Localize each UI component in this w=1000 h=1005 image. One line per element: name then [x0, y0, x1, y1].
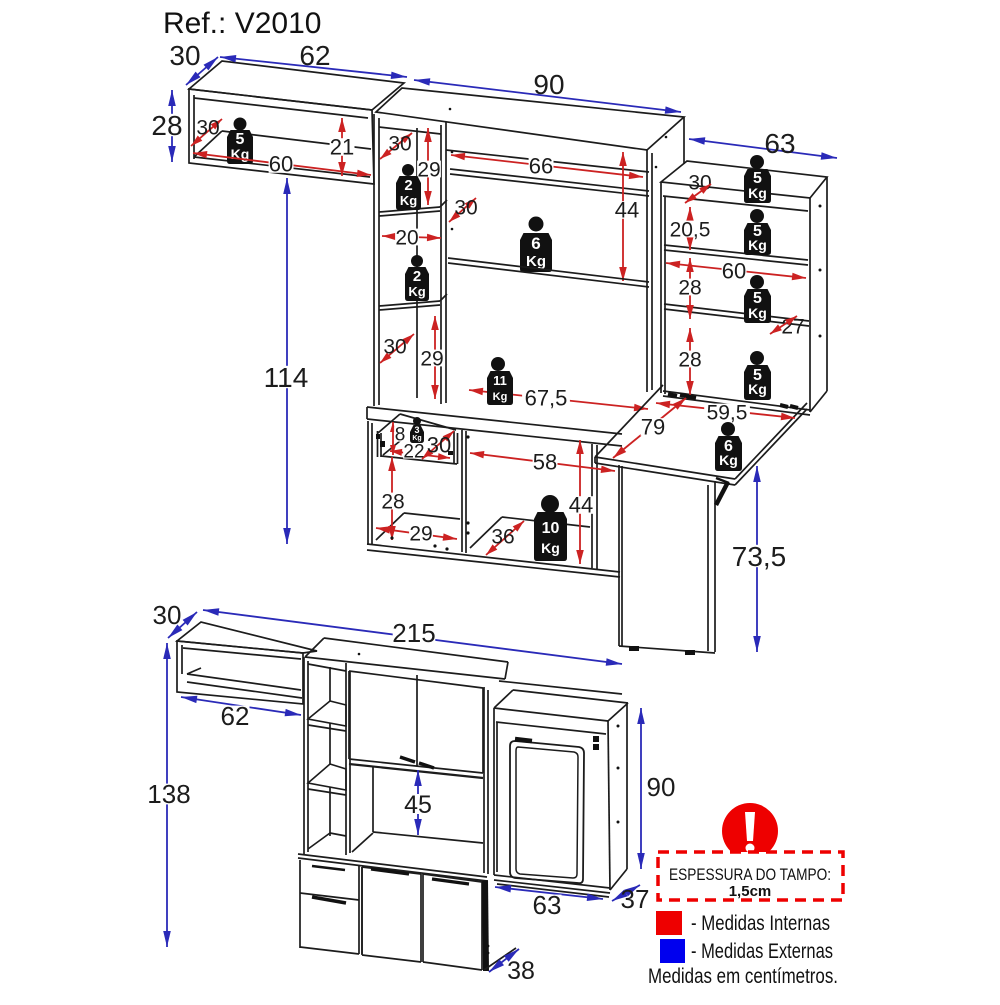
svg-text:30: 30: [688, 171, 711, 194]
svg-text:59,5: 59,5: [707, 401, 748, 424]
svg-text:11: 11: [493, 373, 507, 388]
svg-text:Ref.: V2010: Ref.: V2010: [163, 7, 321, 40]
svg-text:36: 36: [491, 525, 514, 548]
svg-text:3: 3: [414, 425, 419, 435]
svg-text:60: 60: [722, 259, 746, 284]
svg-text:60: 60: [269, 152, 293, 177]
svg-text:20: 20: [395, 226, 418, 249]
svg-text:63: 63: [533, 890, 562, 920]
svg-text:114: 114: [264, 362, 309, 393]
svg-text:63: 63: [764, 128, 795, 159]
svg-text:20,5: 20,5: [670, 218, 711, 241]
svg-text:Kg: Kg: [400, 193, 417, 208]
svg-text:58: 58: [533, 450, 557, 475]
svg-text:Kg: Kg: [748, 381, 767, 397]
svg-text:90: 90: [533, 69, 564, 100]
svg-text:10: 10: [542, 520, 560, 537]
svg-text:215: 215: [392, 618, 435, 648]
svg-text:29: 29: [409, 522, 432, 545]
svg-text:21: 21: [330, 135, 354, 160]
svg-text:28: 28: [151, 110, 182, 141]
svg-text:67,5: 67,5: [525, 386, 568, 411]
svg-text:30: 30: [153, 600, 182, 630]
svg-text:1,5cm: 1,5cm: [729, 883, 772, 900]
svg-text:37: 37: [621, 884, 650, 914]
svg-text:29: 29: [420, 347, 443, 370]
svg-text:45: 45: [404, 791, 432, 819]
svg-text:73,5: 73,5: [732, 541, 787, 572]
svg-text:- Medidas Externas: - Medidas Externas: [691, 940, 833, 963]
svg-text:79: 79: [641, 415, 665, 440]
svg-text:62: 62: [299, 40, 330, 71]
svg-text:62: 62: [221, 701, 250, 731]
svg-text:Kg: Kg: [748, 185, 767, 201]
svg-text:29: 29: [417, 158, 440, 181]
svg-text:Medidas em centímetros.: Medidas em centímetros.: [648, 965, 838, 988]
svg-text:30: 30: [383, 335, 406, 358]
svg-text:30: 30: [454, 196, 477, 219]
svg-text:28: 28: [678, 276, 701, 299]
svg-text:44: 44: [615, 198, 639, 223]
svg-text:Kg: Kg: [748, 237, 767, 253]
svg-text:2: 2: [413, 268, 421, 285]
svg-text:66: 66: [529, 154, 553, 179]
svg-text:28: 28: [381, 490, 404, 513]
svg-text:90: 90: [647, 772, 676, 802]
svg-text:Kg: Kg: [408, 284, 425, 299]
svg-text:Kg: Kg: [719, 452, 738, 468]
svg-text:38: 38: [507, 957, 535, 985]
svg-text:2: 2: [404, 177, 412, 194]
svg-text:6: 6: [531, 234, 540, 253]
svg-text:30: 30: [169, 40, 200, 71]
svg-text:- Medidas Internas: - Medidas Internas: [691, 912, 830, 935]
svg-text:Kg: Kg: [541, 540, 560, 556]
svg-text:44: 44: [569, 493, 593, 518]
svg-text:28: 28: [678, 348, 701, 371]
svg-text:30: 30: [196, 116, 219, 139]
svg-text:ESPESSURA DO TAMPO:: ESPESSURA DO TAMPO:: [669, 866, 831, 884]
svg-text:138: 138: [147, 779, 190, 809]
svg-text:Kg: Kg: [493, 391, 508, 403]
svg-text:30: 30: [388, 132, 411, 155]
svg-text:22: 22: [403, 442, 424, 463]
svg-text:Kg: Kg: [748, 305, 767, 321]
svg-text:30: 30: [427, 433, 451, 458]
